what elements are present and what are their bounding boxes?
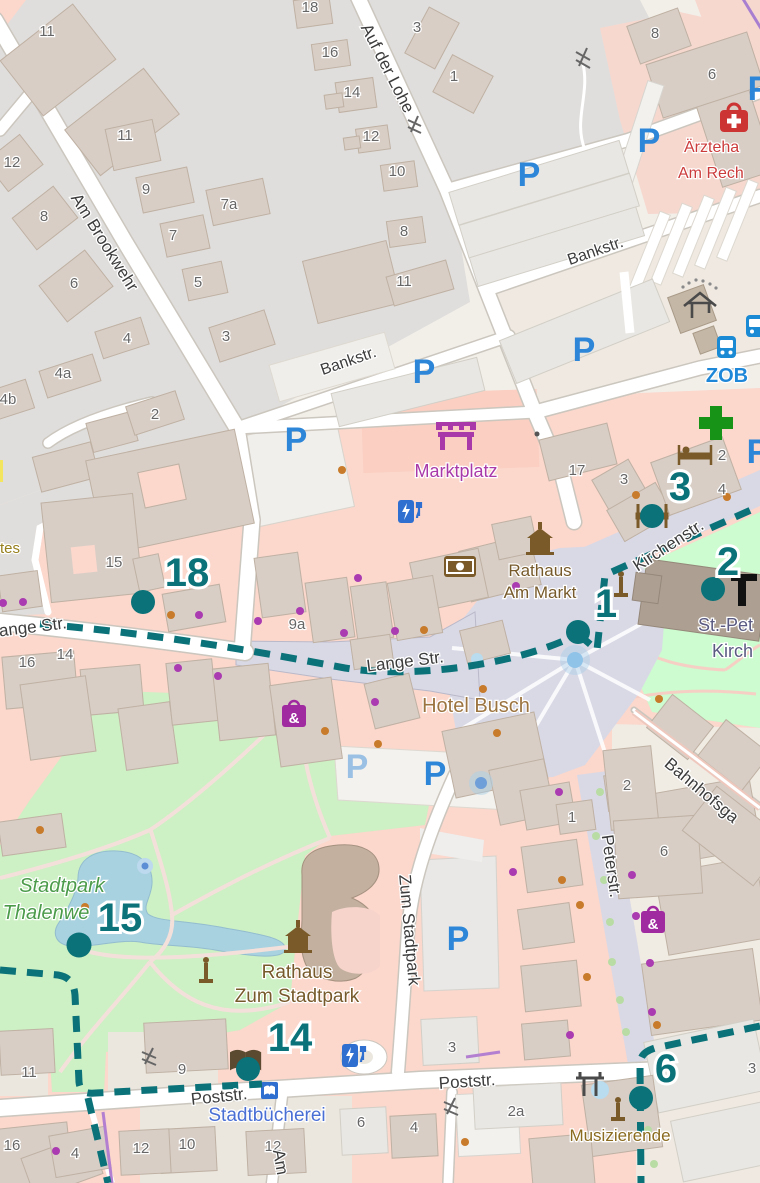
svg-text:P: P <box>413 353 436 391</box>
svg-text:P: P <box>346 748 369 786</box>
svg-text:3: 3 <box>669 465 691 509</box>
svg-text:P: P <box>747 433 760 471</box>
svg-text:St.-Pet: St.-Pet <box>698 615 753 635</box>
svg-text:6: 6 <box>708 66 716 83</box>
svg-text:4: 4 <box>718 481 726 498</box>
svg-text:&: & <box>289 710 300 727</box>
svg-text:4: 4 <box>71 1145 79 1162</box>
svg-text:14: 14 <box>268 1016 313 1060</box>
svg-text:8: 8 <box>40 208 48 225</box>
svg-text:3: 3 <box>448 1039 456 1056</box>
svg-text:P: P <box>518 156 541 194</box>
svg-text:P: P <box>748 70 760 108</box>
svg-text:P: P <box>573 331 596 369</box>
svg-text:14: 14 <box>57 646 74 663</box>
svg-text:Stadtbücherei: Stadtbücherei <box>208 1105 325 1126</box>
svg-text:10: 10 <box>179 1136 196 1153</box>
svg-text:5: 5 <box>194 274 202 291</box>
svg-text:P: P <box>638 122 661 160</box>
svg-text:Rathaus: Rathaus <box>508 561 571 580</box>
svg-text:6: 6 <box>655 1047 677 1091</box>
svg-text:3: 3 <box>620 471 628 488</box>
svg-text:9a: 9a <box>289 616 306 633</box>
svg-text:16: 16 <box>19 654 36 671</box>
svg-text:3: 3 <box>748 1060 756 1077</box>
svg-text:3: 3 <box>413 19 421 36</box>
svg-text:Kirch: Kirch <box>712 641 753 661</box>
svg-text:P: P <box>424 755 447 793</box>
svg-text:tes: tes <box>0 540 20 557</box>
svg-text:2: 2 <box>718 447 726 464</box>
svg-text:8: 8 <box>651 25 659 42</box>
svg-text:17: 17 <box>569 462 586 479</box>
svg-text:2a: 2a <box>508 1103 525 1120</box>
svg-text:12: 12 <box>4 154 21 171</box>
svg-text:16: 16 <box>4 1137 21 1154</box>
svg-text:1: 1 <box>568 809 576 826</box>
svg-text:11: 11 <box>117 127 133 144</box>
svg-text:4a: 4a <box>55 365 72 382</box>
svg-text:Ärzteha: Ärzteha <box>684 138 739 156</box>
svg-text:14: 14 <box>344 84 361 101</box>
svg-text:4b: 4b <box>0 391 16 408</box>
svg-text:7: 7 <box>169 227 177 244</box>
svg-text:Am Rech: Am Rech <box>678 165 744 182</box>
svg-text:2: 2 <box>623 777 631 794</box>
svg-text:2: 2 <box>717 540 739 584</box>
svg-text:P: P <box>285 421 308 459</box>
svg-text:9: 9 <box>142 181 150 198</box>
svg-text:1: 1 <box>595 582 617 626</box>
svg-text:Marktplatz: Marktplatz <box>414 461 497 481</box>
svg-text:Musizierende: Musizierende <box>569 1126 670 1145</box>
svg-text:10: 10 <box>389 163 406 180</box>
svg-text:Rathaus: Rathaus <box>262 962 333 983</box>
svg-text:2: 2 <box>151 406 159 423</box>
svg-text:Zum Stadtpark: Zum Stadtpark <box>235 986 360 1007</box>
svg-text:6: 6 <box>660 843 668 860</box>
svg-text:6: 6 <box>357 1114 365 1131</box>
svg-text:Stadtpark: Stadtpark <box>19 875 106 897</box>
svg-text:4: 4 <box>123 330 131 347</box>
svg-text:12: 12 <box>133 1140 150 1157</box>
svg-text:4: 4 <box>410 1119 418 1136</box>
svg-text:Hotel Busch: Hotel Busch <box>422 695 530 717</box>
svg-text:8: 8 <box>400 223 408 240</box>
svg-text:18: 18 <box>302 0 319 16</box>
svg-text:1: 1 <box>450 68 458 85</box>
svg-text:P: P <box>447 920 470 958</box>
svg-text:15: 15 <box>106 554 123 571</box>
svg-text:11: 11 <box>39 23 55 40</box>
svg-text:ZOB: ZOB <box>706 365 748 387</box>
svg-text:9: 9 <box>178 1061 186 1078</box>
svg-text:Am Markt: Am Markt <box>504 583 577 602</box>
svg-text:Thalenwe: Thalenwe <box>3 902 90 924</box>
svg-text:11: 11 <box>21 1064 37 1081</box>
svg-text:11: 11 <box>396 273 412 290</box>
svg-text:15: 15 <box>98 896 143 940</box>
svg-text:16: 16 <box>322 44 339 61</box>
svg-text:12: 12 <box>363 128 380 145</box>
svg-text:18: 18 <box>165 551 210 595</box>
svg-text:3: 3 <box>222 328 230 345</box>
svg-text:&: & <box>648 916 659 933</box>
svg-text:6: 6 <box>70 275 78 292</box>
svg-text:7a: 7a <box>221 196 238 213</box>
svg-text:Poststr.: Poststr. <box>438 1070 496 1093</box>
